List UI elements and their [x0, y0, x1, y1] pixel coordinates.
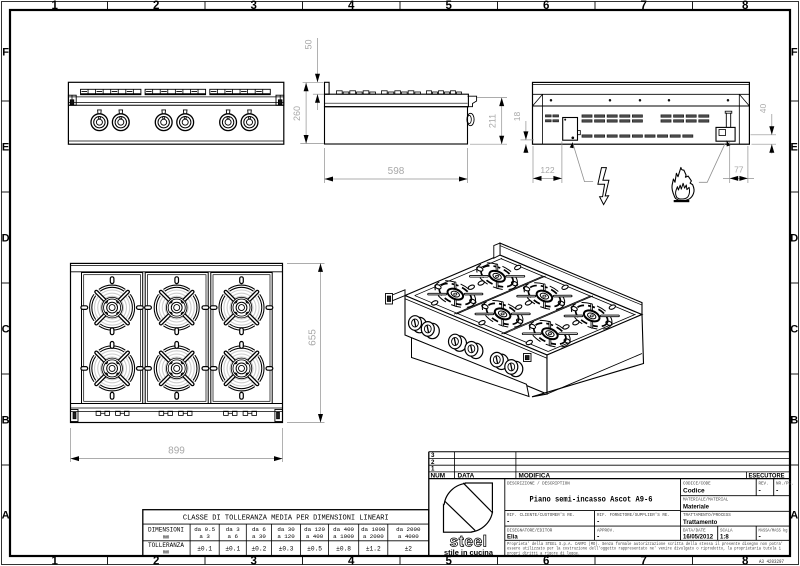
svg-text:a 2000: a 2000 — [363, 533, 384, 540]
svg-text:122: 122 — [540, 165, 554, 175]
svg-text:3: 3 — [251, 555, 257, 566]
svg-text:18: 18 — [512, 112, 522, 122]
svg-text:DATA: DATA — [458, 472, 475, 479]
svg-text:stile in cucina: stile in cucina — [444, 548, 494, 557]
svg-text:a 4000: a 4000 — [398, 533, 419, 540]
svg-text:mm: mm — [163, 533, 170, 540]
svg-text:598: 598 — [388, 166, 405, 177]
svg-text:a 120: a 120 — [277, 533, 295, 540]
svg-text:propri diritti a rigore di leg: propri diritti a rigore di legge. — [507, 552, 580, 557]
svg-text:2: 2 — [153, 0, 159, 12]
svg-text:899: 899 — [168, 446, 185, 457]
svg-text:A3 4203297: A3 4203297 — [759, 558, 784, 565]
svg-text:7: 7 — [641, 555, 647, 566]
svg-text:Elia: Elia — [507, 535, 518, 541]
svg-text:±0.5: ±0.5 — [307, 546, 322, 553]
svg-text:±0.1: ±0.1 — [225, 546, 240, 553]
svg-text:a 6: a 6 — [228, 533, 239, 540]
svg-text:MATERIALE/MATERIAL: MATERIALE/MATERIAL — [683, 498, 729, 503]
svg-text:±0.1: ±0.1 — [197, 546, 212, 553]
svg-text:4: 4 — [348, 0, 355, 12]
svg-text:50: 50 — [304, 39, 314, 49]
svg-text:±0.3: ±0.3 — [279, 546, 294, 553]
svg-text:NR./PG.: NR./PG. — [776, 482, 794, 487]
svg-text:TRATTAMENTO/PROCESS: TRATTAMENTO/PROCESS — [683, 513, 731, 518]
svg-text:Trattamento: Trattamento — [683, 520, 718, 526]
svg-text:a 400: a 400 — [306, 533, 324, 540]
svg-text:a 30: a 30 — [252, 533, 266, 540]
svg-text:a 3: a 3 — [199, 533, 210, 540]
svg-text:RIF. FORNITORE/SUPPLIER'S RE.: RIF. FORNITORE/SUPPLIER'S RE. — [597, 513, 670, 518]
svg-text:6: 6 — [543, 0, 549, 12]
svg-text:16/05/2012: 16/05/2012 — [683, 535, 714, 541]
svg-text:±2: ±2 — [405, 546, 413, 553]
svg-text:C: C — [790, 324, 798, 336]
svg-text:77: 77 — [734, 165, 744, 175]
svg-text:Piano semi-incasso Ascot A9-6: Piano semi-incasso Ascot A9-6 — [530, 495, 653, 505]
svg-text:mm: mm — [163, 549, 170, 556]
svg-text:1:8: 1:8 — [720, 535, 729, 541]
svg-text:260: 260 — [292, 106, 302, 121]
svg-text:3: 3 — [251, 0, 257, 12]
svg-text:1: 1 — [52, 0, 59, 12]
svg-text:C: C — [2, 324, 10, 336]
svg-text:Codice: Codice — [683, 488, 705, 495]
svg-text:DISEGNATORE/EDITOR: DISEGNATORE/EDITOR — [507, 528, 553, 533]
svg-text:E: E — [2, 142, 9, 154]
svg-text:REV.: REV. — [759, 483, 769, 487]
svg-text:±0.8: ±0.8 — [336, 546, 351, 553]
svg-text:DATA/DATE: DATA/DATE — [683, 528, 706, 533]
svg-text:1: 1 — [52, 555, 59, 566]
svg-text:RIF. CLIENTE/CUSTOMER'S RE.: RIF. CLIENTE/CUSTOMER'S RE. — [507, 513, 575, 518]
svg-text:DESCRIZIONE / DESCRIPTION: DESCRIZIONE / DESCRIPTION — [507, 482, 570, 487]
svg-text:D: D — [790, 233, 798, 245]
svg-text:B: B — [790, 415, 798, 427]
svg-text:APPROV.: APPROV. — [597, 529, 615, 533]
svg-text:4: 4 — [348, 555, 355, 566]
svg-text:655: 655 — [308, 329, 319, 346]
svg-text:±0.2: ±0.2 — [251, 546, 266, 553]
svg-text:40: 40 — [758, 104, 768, 114]
svg-text:E: E — [791, 142, 798, 154]
svg-text:A: A — [2, 510, 10, 522]
svg-text:CLASSE DI TOLLERANZA MEDIA PER: CLASSE DI TOLLERANZA MEDIA PER DIMENSION… — [183, 515, 389, 523]
svg-text:F: F — [2, 47, 9, 59]
svg-text:5: 5 — [446, 555, 453, 566]
svg-text:CODICE/CODE: CODICE/CODE — [683, 482, 711, 487]
svg-text:SCALA: SCALA — [720, 529, 733, 533]
svg-text:8: 8 — [742, 555, 749, 566]
svg-text:A: A — [790, 510, 798, 522]
svg-text:211: 211 — [488, 114, 498, 128]
svg-text:MODIFICA: MODIFICA — [519, 472, 551, 479]
svg-text:5: 5 — [446, 0, 453, 12]
svg-text:Materiale: Materiale — [683, 505, 710, 511]
svg-text:6: 6 — [543, 555, 549, 566]
svg-text:F: F — [791, 47, 798, 59]
svg-text:D: D — [2, 233, 10, 245]
svg-text:8: 8 — [742, 0, 749, 12]
svg-text:B: B — [2, 415, 10, 427]
svg-text:ESECUTORE: ESECUTORE — [749, 472, 786, 479]
svg-text:a 1000: a 1000 — [333, 533, 354, 540]
svg-text:±1.2: ±1.2 — [366, 546, 381, 553]
svg-text:NUM: NUM — [431, 472, 446, 479]
svg-text:7: 7 — [641, 0, 647, 12]
svg-text:MASSA/MASS kg: MASSA/MASS kg — [759, 528, 788, 533]
svg-text:2: 2 — [153, 555, 159, 566]
